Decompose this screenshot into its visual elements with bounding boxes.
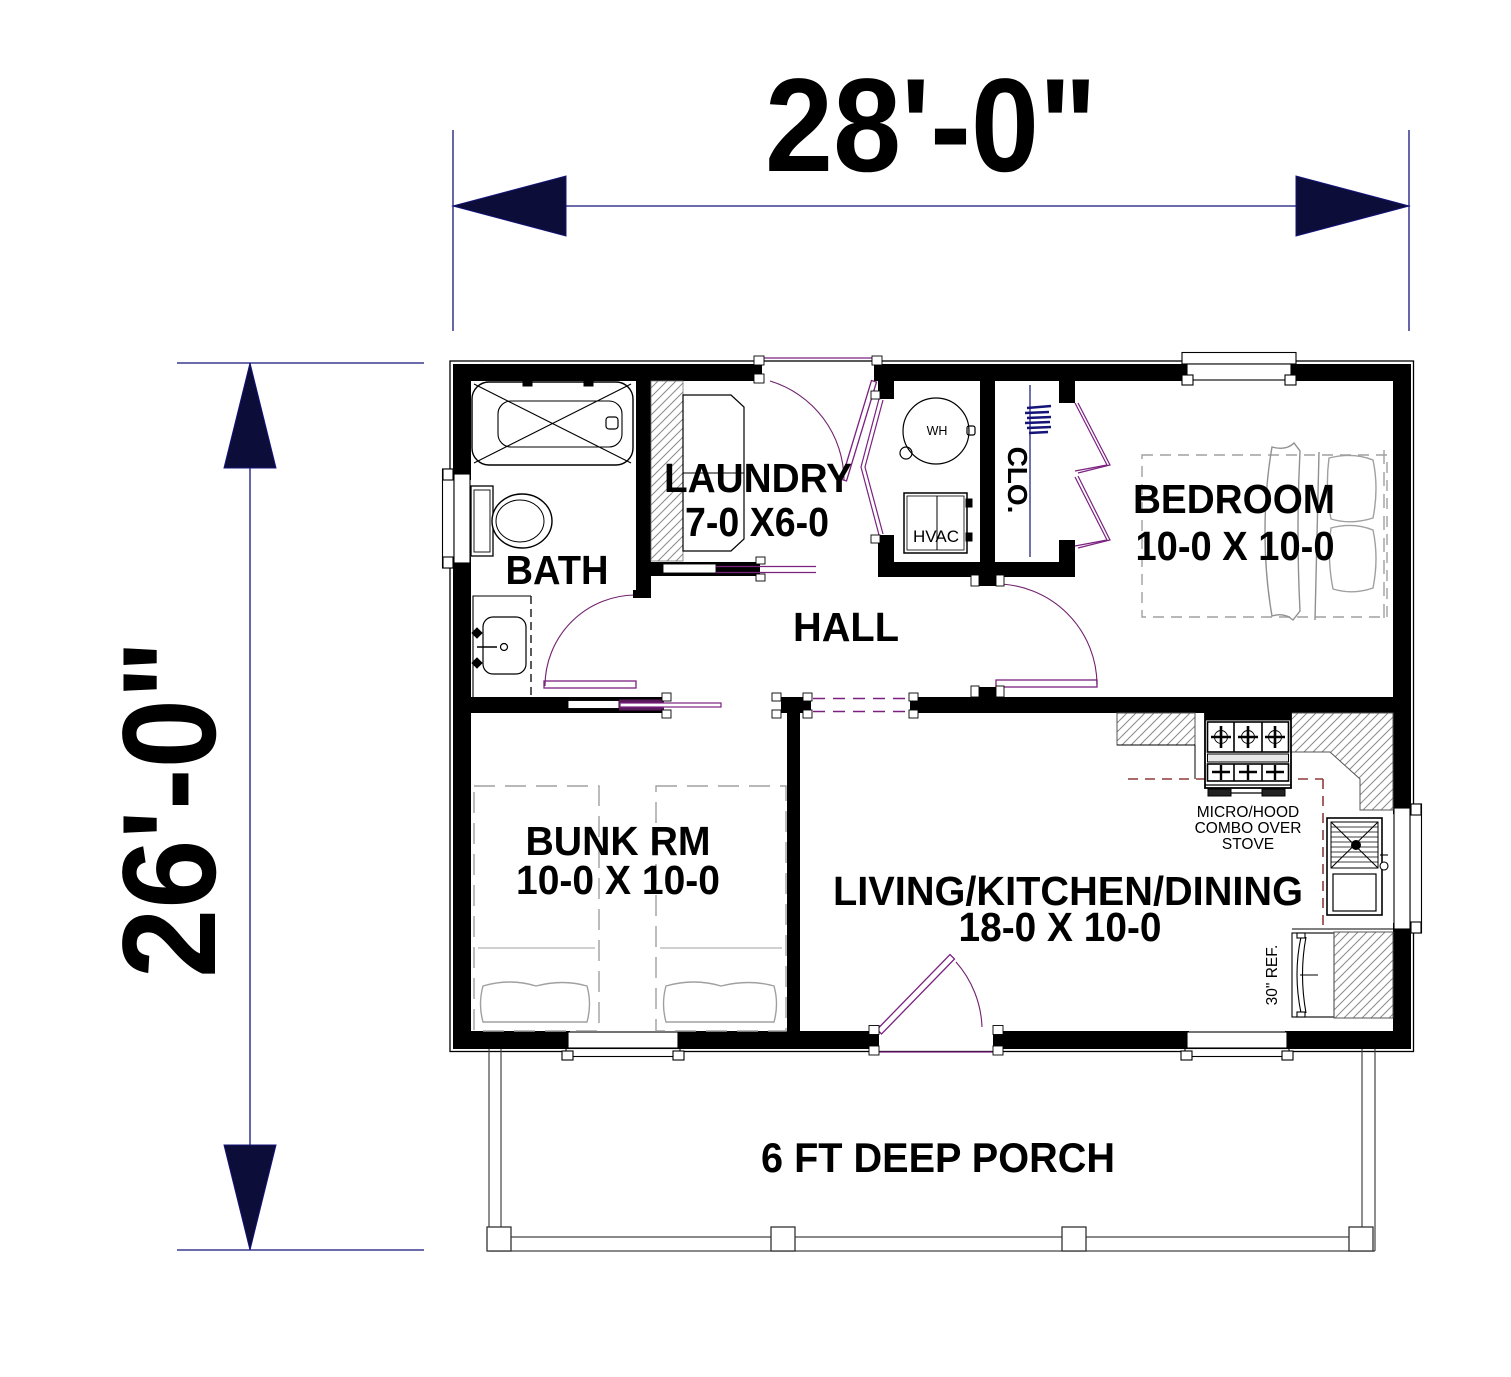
svg-text:10-0 X 10-0: 10-0 X 10-0 bbox=[1136, 523, 1335, 569]
svg-text:LAUNDRY: LAUNDRY bbox=[664, 455, 852, 501]
svg-text:STOVE: STOVE bbox=[1222, 836, 1274, 853]
svg-text:BATH: BATH bbox=[506, 547, 609, 593]
svg-text:MICRO/HOOD: MICRO/HOOD bbox=[1197, 804, 1299, 821]
svg-text:COMBO OVER: COMBO OVER bbox=[1195, 820, 1302, 837]
svg-text:6 FT DEEP PORCH: 6 FT DEEP PORCH bbox=[761, 1134, 1115, 1181]
svg-text:BEDROOM: BEDROOM bbox=[1133, 476, 1335, 522]
svg-text:7-0 X6-0: 7-0 X6-0 bbox=[685, 499, 829, 545]
svg-text:18-0 X 10-0: 18-0 X 10-0 bbox=[959, 904, 1162, 950]
svg-text:HALL: HALL bbox=[793, 604, 899, 650]
svg-text:10-0 X 10-0: 10-0 X 10-0 bbox=[516, 857, 720, 903]
svg-text:WH: WH bbox=[927, 424, 948, 438]
svg-text:28'-0": 28'-0" bbox=[765, 52, 1097, 200]
svg-text:CLO.: CLO. bbox=[1002, 447, 1033, 514]
svg-text:HVAC: HVAC bbox=[913, 527, 959, 546]
svg-text:26'-0": 26'-0" bbox=[96, 640, 244, 978]
svg-text:30" REF.: 30" REF. bbox=[1264, 945, 1281, 1006]
